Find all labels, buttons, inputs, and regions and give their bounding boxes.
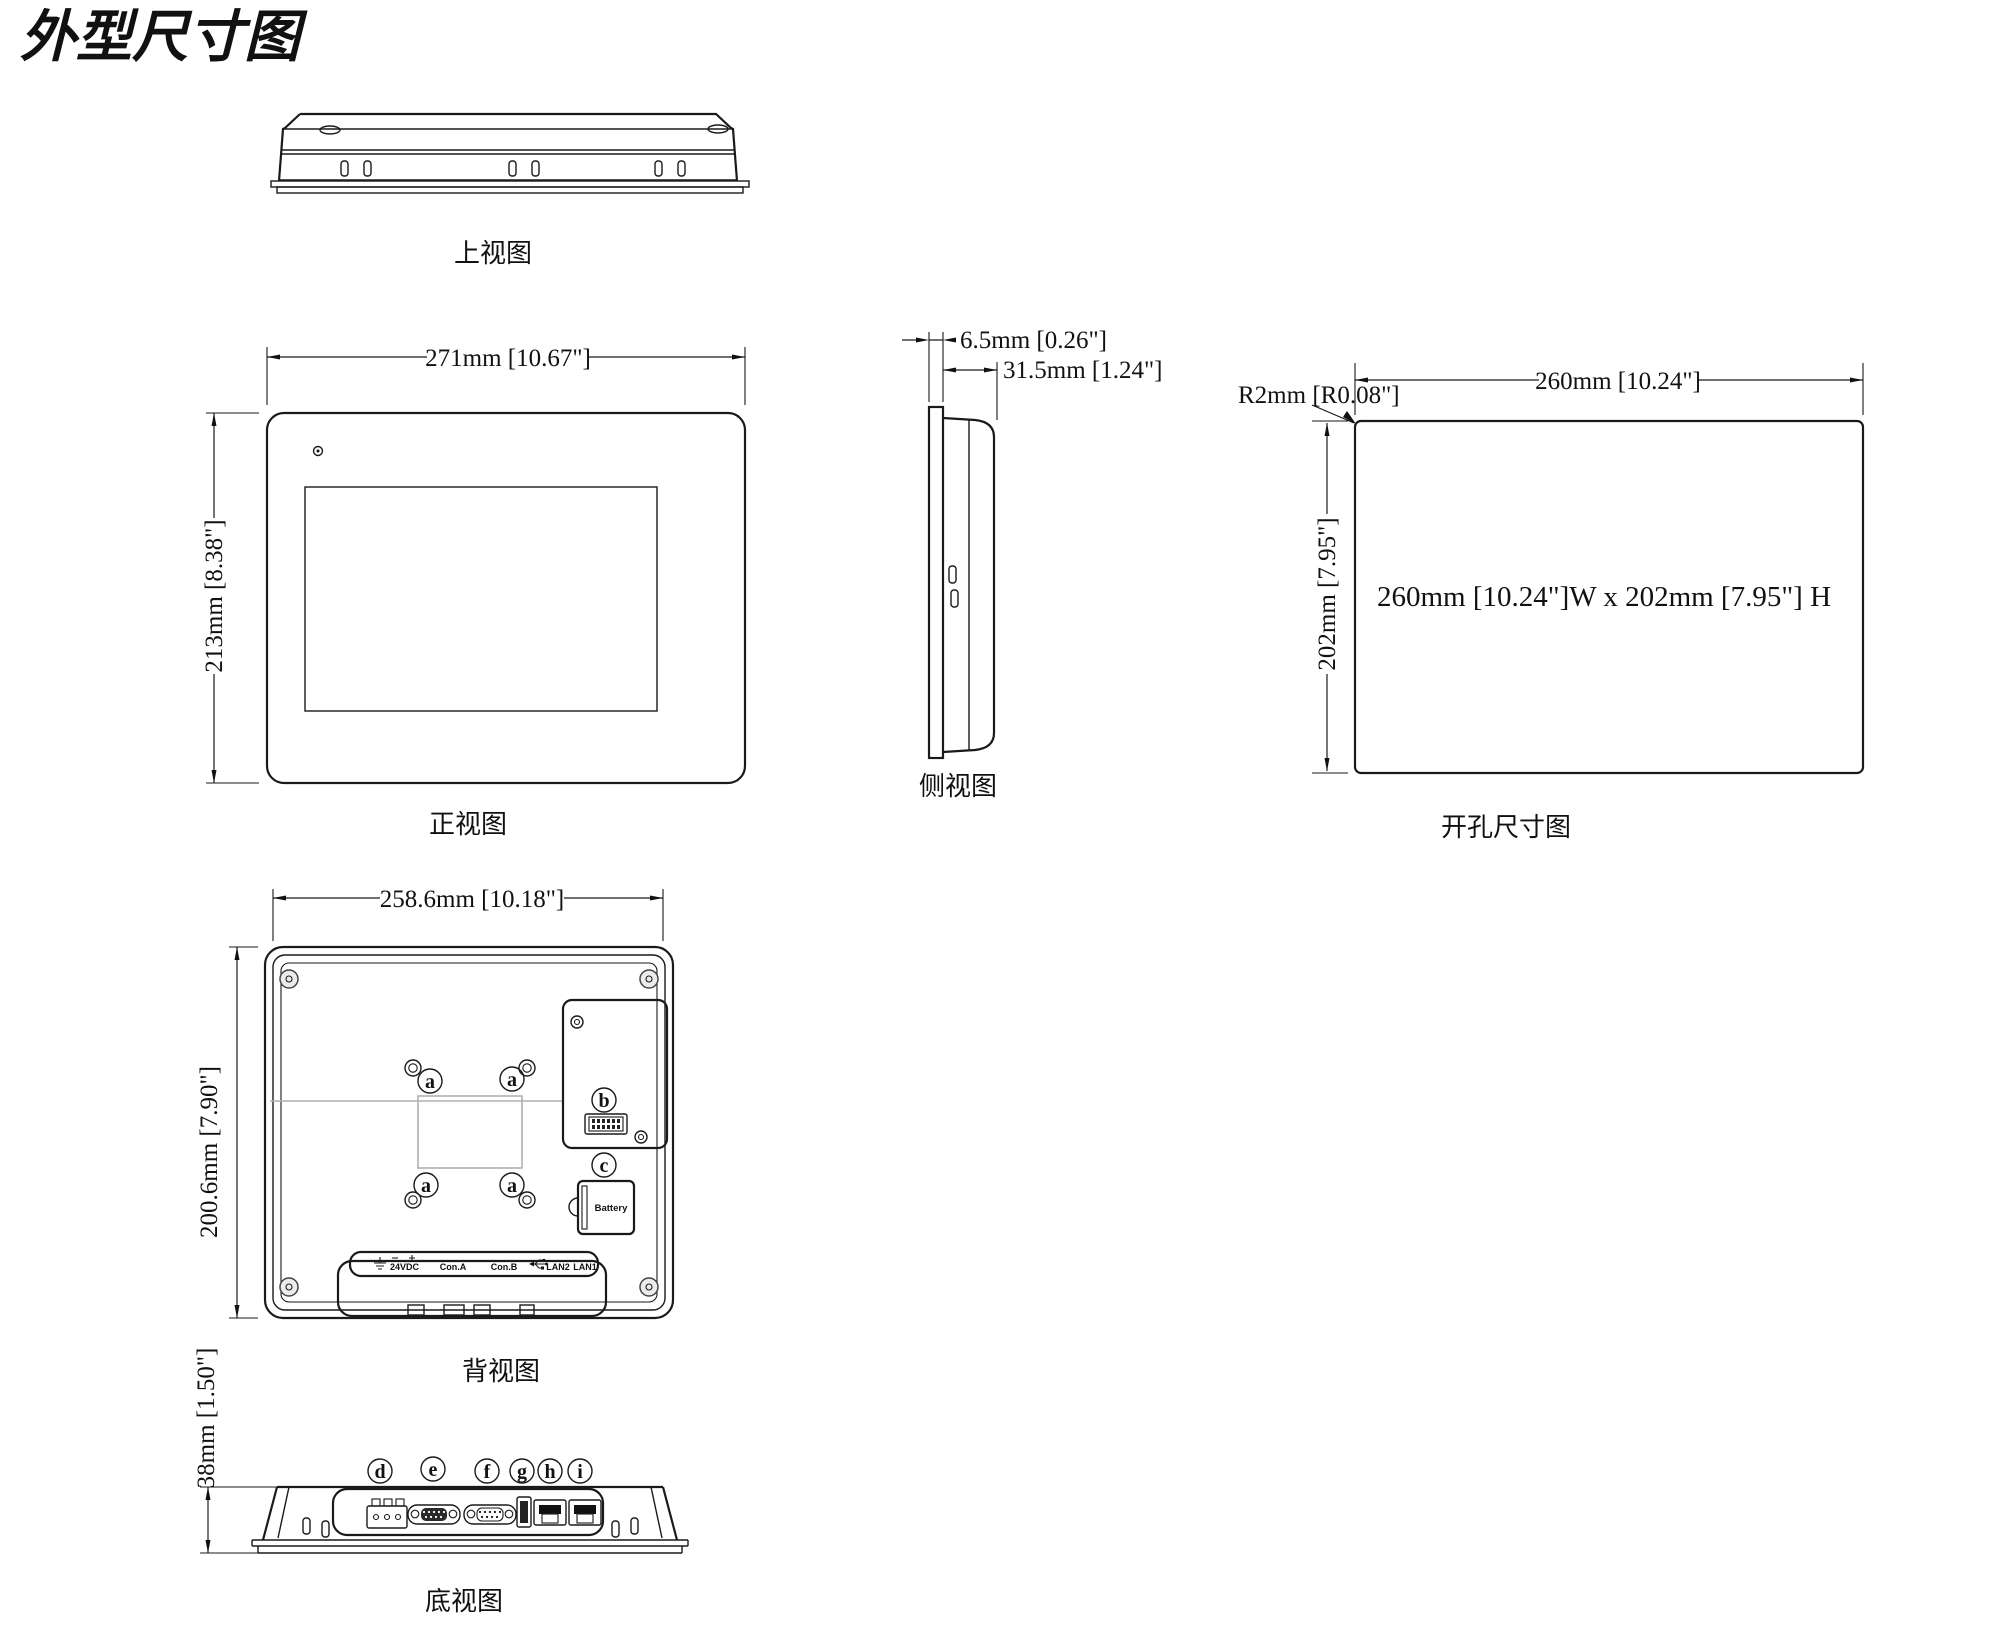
front-view: 271mm [10.67"] 213mm [8.38"] 正视图 — [201, 345, 745, 839]
cutout-radius-text: R2mm [R0.08"] — [1238, 382, 1400, 409]
top-base-plate — [271, 181, 749, 187]
side-bezel — [929, 407, 943, 758]
rear-view: a a a a b c Batter — [196, 886, 673, 1386]
battery-label: Battery — [595, 1203, 628, 1214]
callout-h: h — [538, 1459, 562, 1483]
cutout-radius-callout: R2mm [R0.08"] — [1238, 382, 1400, 424]
rear-corner-screws — [280, 970, 658, 1296]
rj45-lan2 — [534, 1500, 566, 1525]
bottom-height-text: 38mm [1.50"] — [193, 1348, 220, 1489]
front-width-text: 271mm [10.67"] — [425, 345, 591, 372]
callout-a: a — [500, 1067, 524, 1091]
front-height-dimension: 213mm [8.38"] — [201, 413, 259, 783]
page-title: 外型尺寸图 — [20, 7, 308, 69]
bottom-outline — [263, 1487, 677, 1540]
cutout-view: 260mm [10.24"]W x 202mm [7.95"] H 260mm … — [1238, 363, 1863, 842]
db9-con-b — [464, 1505, 516, 1524]
side-view-label: 侧视图 — [919, 772, 997, 801]
cutout-note: 260mm [10.24"]W x 202mm [7.95"] H — [1377, 581, 1831, 613]
side-front-depth-text: 6.5mm [0.26"] — [960, 327, 1107, 354]
battery-compartment: c Battery — [569, 1153, 634, 1234]
svg-text:i: i — [577, 1461, 583, 1483]
callout-d: d — [368, 1459, 392, 1483]
top-vent-slots — [341, 161, 685, 176]
rear-height-dimension: 200.6mm [7.90"] — [196, 947, 258, 1318]
bottom-callouts: d e f g h i — [368, 1457, 592, 1483]
svg-text:c: c — [600, 1155, 609, 1177]
front-width-dimension: 271mm [10.67"] — [267, 345, 745, 405]
callout-a: a — [418, 1069, 442, 1093]
front-view-label: 正视图 — [429, 810, 507, 839]
callout-b: b — [592, 1088, 616, 1112]
callout-c: c — [592, 1153, 616, 1177]
svg-text:a: a — [507, 1175, 517, 1197]
top-screw-left — [320, 126, 340, 134]
cutout-view-label: 开孔尺寸图 — [1441, 813, 1571, 842]
port-label-power: 24VDC — [390, 1262, 420, 1272]
power-terminal-connector — [367, 1499, 407, 1528]
top-view-label: 上视图 — [454, 239, 532, 268]
svg-text:a: a — [421, 1175, 431, 1197]
side-total-depth-text: 31.5mm [1.24"] — [1003, 357, 1163, 384]
rear-height-text: 200.6mm [7.90"] — [196, 1066, 223, 1238]
bottom-view-label: 底视图 — [425, 1587, 503, 1616]
usb-port — [517, 1497, 531, 1527]
cutout-height-dimension: 202mm [7.95"] — [1312, 421, 1348, 773]
port-label-lan1: LAN1 — [573, 1262, 597, 1272]
cutout-height-text: 202mm [7.95"] — [1314, 517, 1341, 670]
ground-icon — [374, 1257, 386, 1269]
callout-a: a — [414, 1173, 438, 1197]
top-view: 上视图 — [271, 114, 749, 268]
db9-con-a — [408, 1505, 460, 1524]
svg-text:b: b — [598, 1090, 609, 1112]
svg-text:h: h — [544, 1461, 555, 1483]
svg-text:f: f — [484, 1461, 491, 1483]
rear-width-text: 258.6mm [10.18"] — [380, 886, 565, 913]
port-label-con-b: Con.B — [491, 1262, 518, 1272]
svg-text:a: a — [507, 1069, 517, 1091]
svg-text:d: d — [374, 1461, 385, 1483]
svg-text:a: a — [425, 1071, 435, 1093]
side-view: 6.5mm [0.26"] 31.5mm [1.24"] 侧视图 — [902, 327, 1163, 801]
side-total-depth-dimension: 31.5mm [1.24"] — [943, 357, 1163, 420]
callout-e: e — [421, 1457, 445, 1481]
svg-text:g: g — [517, 1461, 527, 1483]
front-height-text: 213mm [8.38"] — [201, 519, 228, 672]
callout-g: g — [510, 1459, 534, 1483]
callout-a: a — [500, 1173, 524, 1197]
dimension-drawing-page: 外型尺寸图 上视图 271mm [10.67 — [0, 0, 1998, 1639]
port-label-con-a: Con.A — [440, 1262, 467, 1272]
cutout-width-dimension: 260mm [10.24"] — [1355, 363, 1863, 415]
rear-view-label: 背视图 — [462, 1357, 540, 1386]
rear-port-label-strip: 24VDC Con.A Con.B LAN2 LAN1 — [350, 1252, 598, 1276]
bottom-view: d e f g h i 38mm [1.50"] 底视图 — [193, 1348, 688, 1616]
callout-i: i — [568, 1459, 592, 1483]
rj45-lan1 — [569, 1500, 601, 1525]
bottom-base — [252, 1540, 688, 1553]
port-label-lan2: LAN2 — [546, 1262, 570, 1272]
drawing-svg: 外型尺寸图 上视图 271mm [10.67 — [0, 0, 1998, 1639]
rear-center-plate — [418, 1096, 522, 1168]
rear-outline — [265, 947, 673, 1318]
front-bezel — [267, 413, 745, 783]
rear-access-panel: b — [563, 1000, 667, 1148]
front-screen — [305, 487, 657, 711]
dip-connector — [585, 1114, 627, 1134]
rear-width-dimension: 258.6mm [10.18"] — [273, 886, 663, 941]
bottom-height-dimension: 38mm [1.50"] — [193, 1348, 277, 1553]
svg-text:e: e — [429, 1459, 438, 1481]
callout-f: f — [475, 1459, 499, 1483]
finger-notch — [569, 1198, 578, 1216]
vesa-holes: a a a a — [405, 1060, 535, 1208]
cutout-width-text: 260mm [10.24"] — [1535, 368, 1701, 395]
